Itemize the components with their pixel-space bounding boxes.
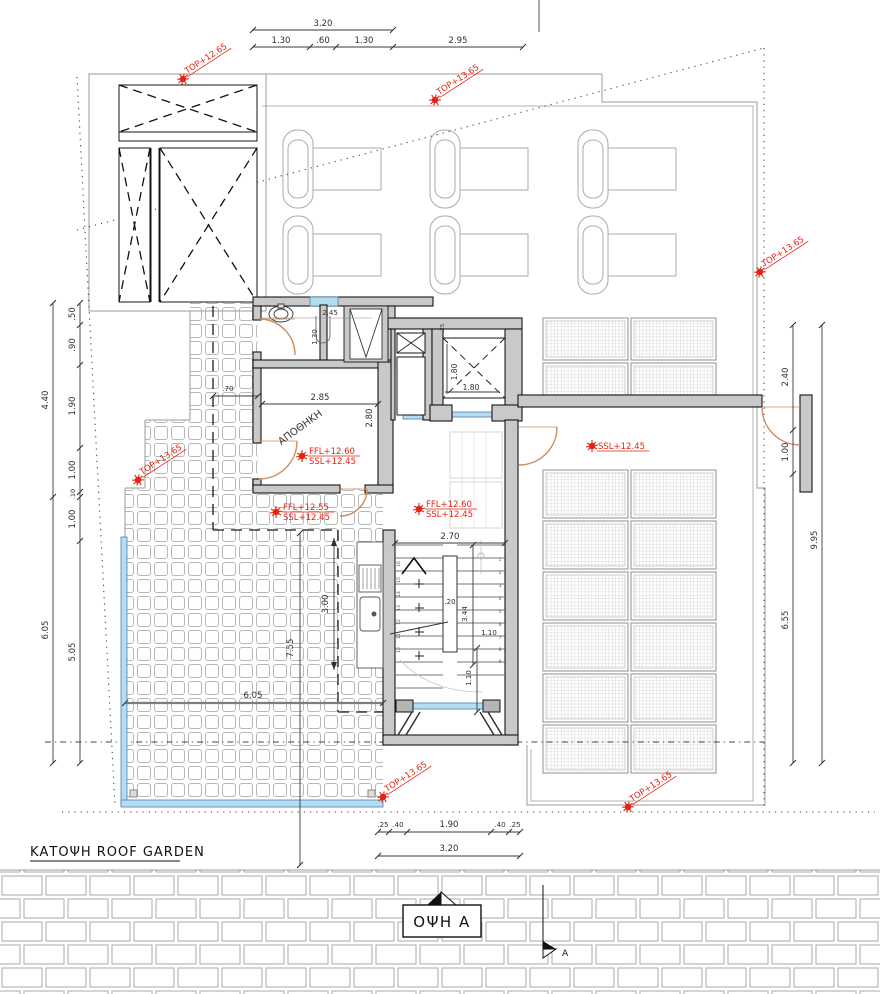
- stair-number: 13: [396, 605, 402, 611]
- pergola-panel: [631, 470, 716, 518]
- stair-number: 12: [396, 619, 402, 625]
- dim-label: .60: [316, 36, 330, 46]
- stair-number: 15: [396, 577, 402, 583]
- door-arc-storage-left: [259, 441, 297, 479]
- level-label: TOP+13.65: [382, 760, 429, 795]
- level-marker: SSL+12.45: [586, 440, 649, 452]
- dim-label: 3.20: [440, 844, 459, 854]
- stair-number: 11: [396, 633, 402, 639]
- shower-icon: [344, 306, 388, 362]
- pergola-panel: [631, 725, 716, 773]
- pergola-panel: [631, 572, 716, 620]
- pergola-panel: [631, 521, 716, 569]
- level-label: SSL+12.45: [426, 510, 473, 520]
- dim-label: .25: [377, 821, 388, 829]
- pergola-panel: [631, 318, 716, 360]
- stair-number: 10: [396, 647, 402, 653]
- dim-label: .50: [68, 307, 78, 321]
- dim-label: 6.05: [244, 691, 263, 701]
- dim-label: .40: [392, 821, 403, 829]
- level-marker: TOP+13.65: [618, 768, 679, 815]
- dim-label: 1.10: [481, 629, 497, 637]
- sun-lounger: [283, 130, 381, 208]
- pergola-panel: [543, 623, 628, 671]
- pergola-panel: [543, 318, 628, 360]
- dim-label: 1.00: [68, 510, 78, 529]
- sun-lounger: [578, 216, 676, 294]
- level-label: TOP+13.65: [759, 235, 806, 270]
- pergola-panel: [631, 623, 716, 671]
- pergola-panel: [543, 725, 628, 773]
- level-label: FFL+12.55: [283, 503, 329, 513]
- stair-number: 6: [499, 622, 502, 628]
- kitchen-counter: [357, 542, 383, 668]
- stair-number: 16: [396, 561, 402, 567]
- level-label: FFL+12.60: [426, 500, 472, 510]
- level-label: SSL+12.45: [309, 457, 356, 467]
- dim-label: 2.95: [449, 36, 468, 46]
- dim-label: 4.40: [41, 391, 51, 410]
- stair-up-arrow-icon: [402, 558, 426, 574]
- dim-label: .40: [494, 821, 505, 829]
- hob-icon: [359, 565, 381, 592]
- room-label-storage: ΑΠΟΘΗΚΗ: [276, 408, 324, 447]
- dim-label: 1.80: [450, 363, 459, 380]
- level-marker: TOP+13.65: [750, 233, 811, 280]
- stair-number: 8: [499, 647, 502, 653]
- level-label: FFL+12.60: [309, 447, 355, 457]
- roof-garden-plan: 3.201.30.601.302.954.406.05.50.901.901.0…: [0, 0, 880, 994]
- dim-label: 9.95: [810, 531, 820, 550]
- title-block: ΚΑΤΟΨΗ ROOF GARDEN: [30, 845, 205, 861]
- sun-lounger: [430, 130, 528, 208]
- level-marker: FFL+12.60SSL+12.45: [413, 500, 477, 520]
- dim-label: 2.45: [322, 309, 338, 317]
- door-arc-right-wing: [762, 407, 800, 445]
- dim-label: 3.44: [461, 606, 469, 622]
- pergola-panel: [543, 572, 628, 620]
- stair-number: 9: [499, 659, 502, 665]
- dim-label: 1.30: [272, 36, 291, 46]
- level-label: TOP+13.65: [627, 770, 674, 805]
- dim-label: 1.00: [781, 443, 791, 462]
- dim-label: .90: [68, 338, 78, 352]
- section-letter: A: [562, 949, 569, 959]
- dim-label: 3.00: [321, 595, 331, 614]
- dim-label: 6.55: [781, 611, 791, 630]
- dim-label: 2.80: [365, 409, 375, 428]
- level-marker: FFL+12.60SSL+12.45: [296, 447, 360, 467]
- door-arc-bathroom: [259, 319, 295, 355]
- level-marker: TOP+12.65: [173, 40, 234, 87]
- dim-label: 1.30: [311, 329, 319, 345]
- dim-label: 6.05: [41, 621, 51, 640]
- sun-lounger: [578, 130, 676, 208]
- stair-number: 1: [499, 557, 502, 563]
- dim-label: 1.90: [68, 397, 78, 416]
- dim-label: 5.05: [68, 643, 78, 662]
- dim-label: 1.90: [440, 820, 459, 830]
- sun-lounger: [430, 216, 528, 294]
- staircase: [390, 432, 505, 692]
- stair-number: 7: [499, 635, 502, 641]
- level-label: TOP+12.65: [182, 42, 229, 77]
- door-arc-corridor: [519, 427, 557, 465]
- pergola-panel: [543, 470, 628, 518]
- sun-lounger: [283, 216, 381, 294]
- stair-number: 14: [396, 591, 402, 597]
- dim-label: 2.70: [441, 532, 460, 542]
- plan-title: ΚΑΤΟΨΗ ROOF GARDEN: [30, 845, 205, 860]
- pergola-panel: [543, 674, 628, 722]
- pergola-panel: [631, 674, 716, 722]
- dim-label: 1.30: [355, 36, 374, 46]
- pergola-panel: [543, 521, 628, 569]
- dim-label: 1.00: [68, 461, 78, 480]
- stair-number: 2: [499, 570, 502, 576]
- dim-label: .25: [440, 323, 446, 332]
- dim-label: 2.40: [781, 368, 791, 387]
- level-label: SSL+12.45: [283, 513, 330, 523]
- level-label: SSL+12.45: [598, 442, 645, 452]
- dim-label: 3.20: [314, 19, 333, 29]
- stair-number: 5: [499, 609, 502, 615]
- stair-number: 3: [499, 583, 502, 589]
- pergola-panels: [543, 318, 716, 773]
- stair-number: 4: [499, 596, 502, 602]
- dim-label: .70: [222, 385, 233, 393]
- sun-loungers: [283, 130, 676, 294]
- dim-label: .25: [509, 821, 520, 829]
- dim-label: 7.55: [286, 639, 296, 658]
- dim-label: 1.80: [463, 383, 480, 392]
- dim-label: 2.85: [311, 393, 330, 403]
- dim-label: .10: [69, 489, 77, 499]
- dim-label: .20: [444, 598, 455, 606]
- roof-garden-plan-page: { "meta": { "plan_title": "ΚΑΤΟΨΗ ROOF G…: [0, 0, 880, 994]
- roof-tank: [119, 85, 257, 302]
- elevation-label: ΟΨΗ Α: [413, 913, 470, 931]
- sink-icon: [360, 597, 380, 631]
- level-marker: TOP+13.65: [425, 61, 486, 108]
- level-label: TOP+13.65: [434, 63, 481, 98]
- dim-label: 1.10: [465, 670, 473, 686]
